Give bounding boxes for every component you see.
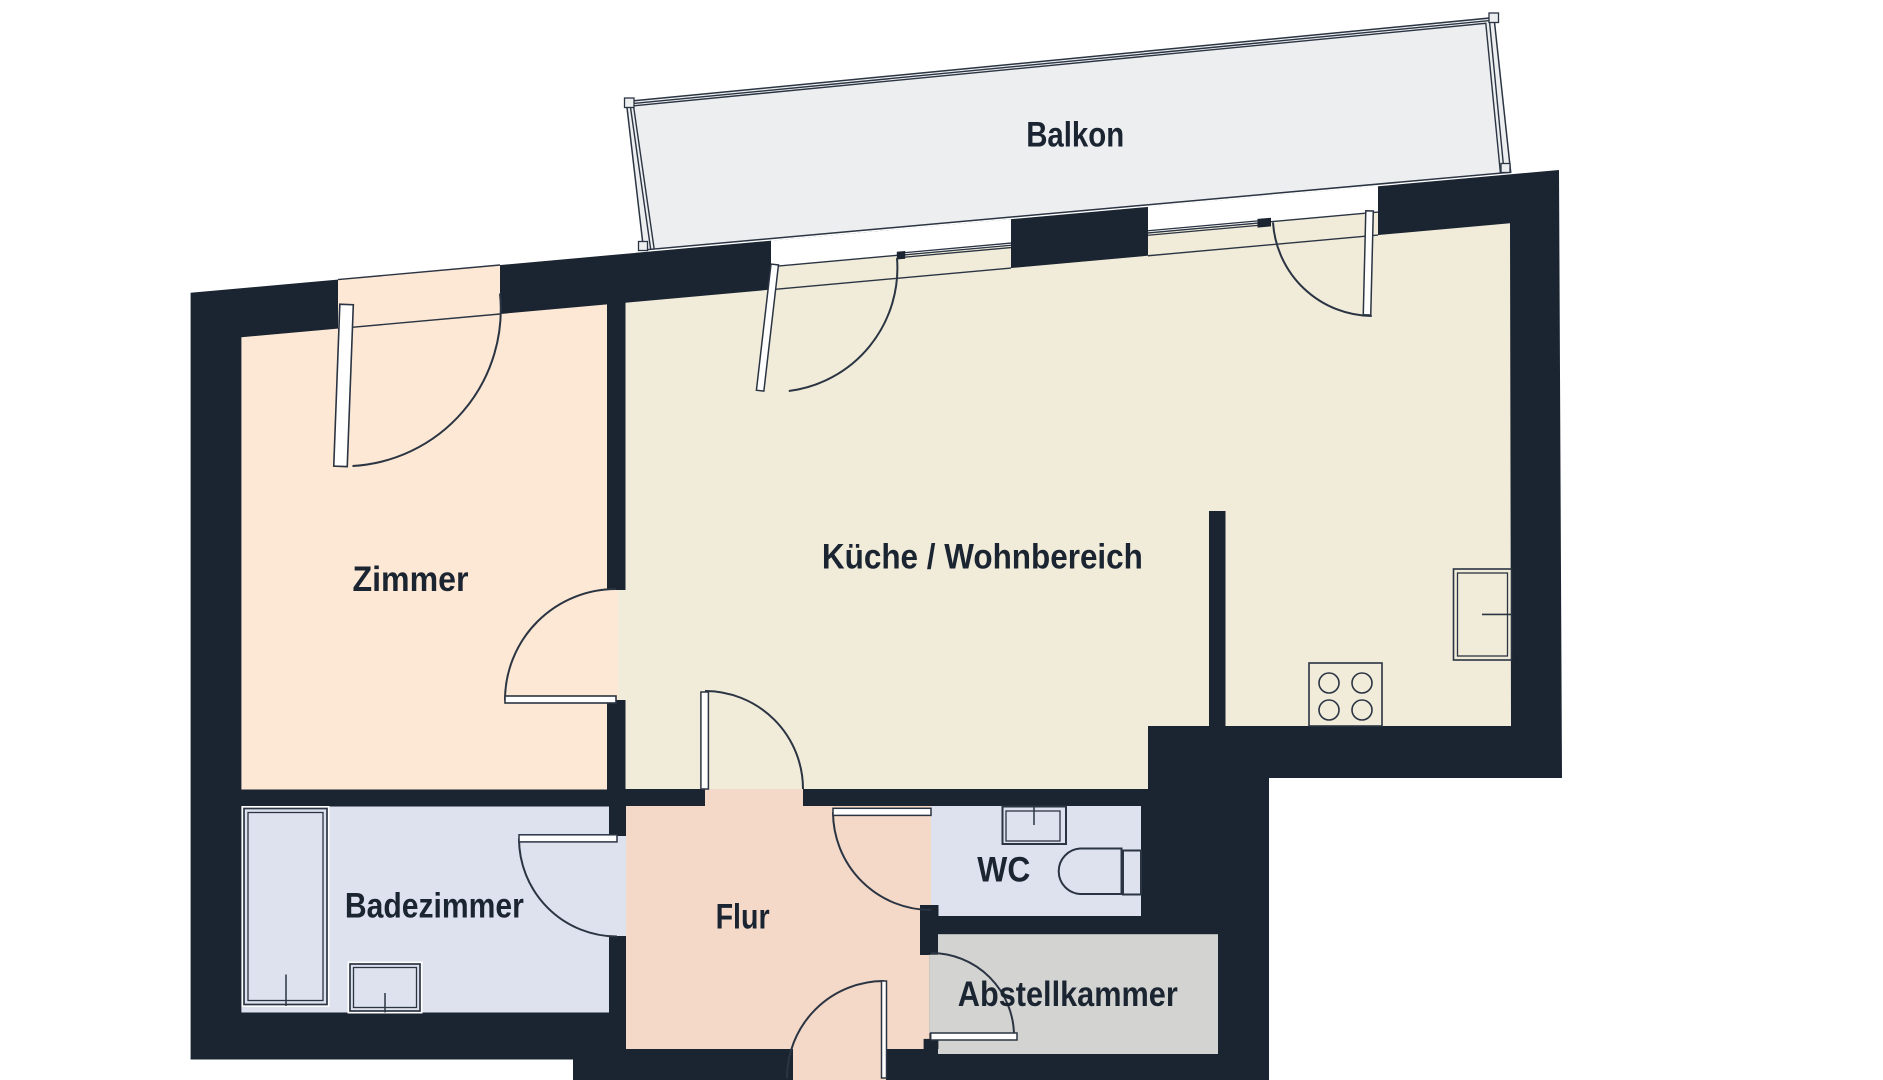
svg-text:Balkon: Balkon xyxy=(1026,115,1124,154)
svg-text:Badezimmer: Badezimmer xyxy=(345,887,524,926)
svg-text:Flur: Flur xyxy=(716,898,770,937)
svg-text:Küche / Wohnbereich: Küche / Wohnbereich xyxy=(822,538,1143,577)
svg-text:Abstellkammer: Abstellkammer xyxy=(958,975,1178,1014)
svg-text:WC: WC xyxy=(977,851,1030,890)
svg-text:Zimmer: Zimmer xyxy=(353,560,469,599)
